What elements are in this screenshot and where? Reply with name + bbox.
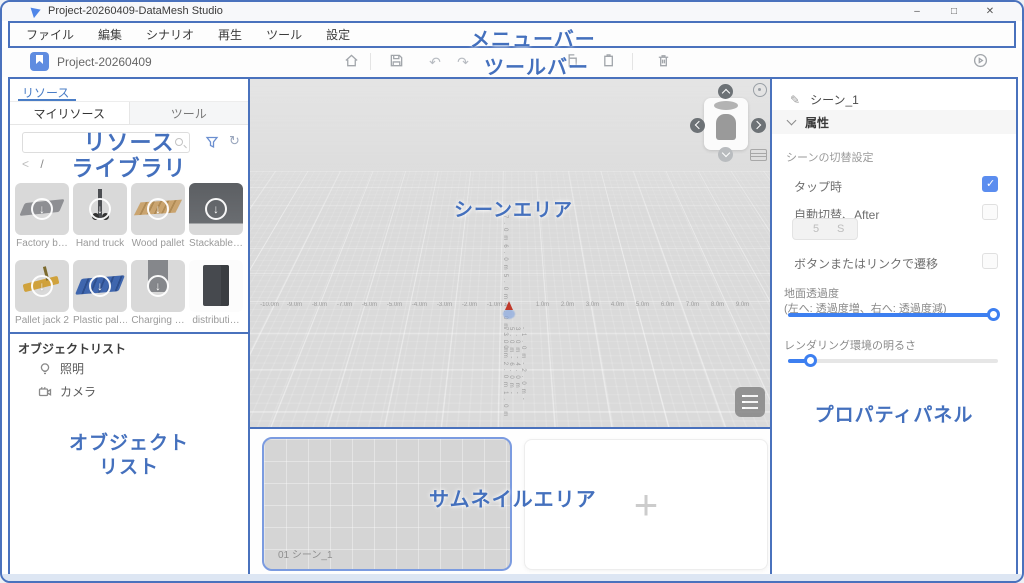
ruler-label: -9.0m [282,302,307,308]
resource-thumbnail: ↓ [15,183,69,235]
ruler-label: 5.0m [630,302,655,308]
ruler-label: -10.0m [257,302,282,308]
scene-haze [250,79,770,218]
attributes-section-label: 属性 [805,114,829,131]
ruler-label: -2.0m [457,302,482,308]
scene-ruler-vertical-top: 7.0m6.0m5.0m4.0m3.0m2.0m1.0m [502,215,508,301]
ruler-label: 9.0m [730,302,755,308]
scene-ruler-horizontal-left: -10.0m-9.0m-8.0m-7.0m-6.0m-5.0m-4.0m-3.0… [257,302,507,308]
delay-unit: S [837,223,844,235]
slider-fill [788,313,998,317]
slider-handle[interactable] [987,308,1000,321]
light-icon [38,362,52,376]
object-list-header: オブジェクトリスト [18,340,126,357]
gizmo-head-front [716,114,736,140]
object-item-light[interactable]: 照明 [38,360,84,377]
orbit-up-button[interactable] [718,84,733,99]
auto-switch-checkbox[interactable] [982,204,998,220]
resource-item-label: Factory b… [15,238,69,249]
resource-thumbnail: ↓ [131,260,185,312]
resource-item-label: distributi… [189,315,243,326]
resource-item-label: Pallet jack 2 [15,315,69,326]
resource-subtabs: マイリソース ツール [10,102,248,125]
window-title: Project-20260409-DataMesh Studio [48,5,223,17]
search-input[interactable] [22,132,190,153]
ruler-label: 7.0m [680,302,705,308]
resource-item-woodpallet[interactable]: ↓ Wood pallet [131,183,185,249]
keyboard-shortcuts-icon[interactable] [750,149,767,161]
scene-viewport[interactable]: -10.0m-9.0m-8.0m-7.0m-6.0m-5.0m-4.0m-3.0… [250,79,770,427]
resource-thumbnail: ↓ [189,183,243,235]
menu-item-edit[interactable]: 編集 [98,26,122,43]
menu-item-play[interactable]: 再生 [218,26,242,43]
properties-panel: ✎ シーン_1 属性 シーンの切替設定 タップ時 自動切替、After 5 S … [772,79,1016,575]
ruler-label: -4.0m [514,356,520,391]
resource-item-distribution[interactable]: distributi… [189,260,243,326]
scene-origin-gizmo[interactable] [502,305,516,319]
ruler-label: 3.0m [580,302,605,308]
orbit-right-button[interactable] [751,118,766,133]
object-item-label: カメラ [60,383,96,400]
save-icon[interactable] [387,53,405,71]
ruler-label: 4.0m [605,302,630,308]
ruler-label: 5.0m [502,274,508,303]
tab-my-resources[interactable]: マイリソース [10,102,129,124]
menu-item-settings[interactable]: 設定 [326,26,350,43]
download-icon: ↓ [147,275,169,297]
scene-ruler-horizontal-right: 1.0m2.0m3.0m4.0m5.0m6.0m7.0m8.0m9.0m [530,302,755,308]
chevron-down-icon [787,116,797,126]
refresh-icon[interactable]: ↻ [229,133,240,149]
minimize-button[interactable]: – [906,4,928,19]
toolbar-divider [370,53,371,70]
toolbar-divider [632,53,633,70]
resource-item-charging[interactable]: ↓ Charging … [131,260,185,326]
resource-item-stackable[interactable]: ↓ Stackable… [189,183,243,249]
download-icon: ↓ [205,198,227,220]
app-logo-icon [31,5,43,18]
ruler-label: 1.0m [530,302,555,308]
resource-item-label: Stackable… [189,238,243,249]
project-name: Project-20260409 [57,55,152,69]
scene-name: シーン_1 [810,91,859,108]
paste-icon[interactable] [600,53,618,71]
ruler-label: -3.0m [432,302,457,308]
breadcrumb[interactable]: < / [22,157,44,171]
ruler-label: 8.0m [705,302,730,308]
download-icon: ↓ [31,198,53,220]
thumbnail-area: 01 シーン_1 + [250,429,770,575]
play-icon[interactable] [971,53,989,71]
resource-thumbnail: ↓ [131,183,185,235]
redo-icon[interactable]: ↷ [454,53,472,71]
ruler-label: -1.0m [520,327,526,362]
resource-item-handtruck[interactable]: ↓ Hand truck [73,183,127,249]
status-bar [2,574,1022,581]
resource-thumbnail: ↓ [73,260,127,312]
camera-icon [38,385,52,399]
ruler-label: 2.0m [555,302,580,308]
ruler-label: 6.0m [502,244,508,273]
menu-item-tools[interactable]: ツール [266,26,302,43]
resource-item-plasticpallet[interactable]: ↓ Plastic pal… [73,260,127,326]
ground-opacity-label: 地面透過度 [784,285,839,301]
download-icon: ↓ [89,198,111,220]
download-icon: ↓ [31,275,53,297]
breadcrumb-path: / [40,157,43,171]
title-bar: Project-20260409-DataMesh Studio – □ ✕ [2,2,1022,21]
plus-icon: + [525,440,767,569]
project-icon [30,52,49,71]
resource-item-label: Wood pallet [131,238,185,249]
menu-item-file[interactable]: ファイル [26,26,74,43]
resource-item-label: Hand truck [73,238,127,249]
filter-icon[interactable] [205,135,219,154]
scene-thumbnail-1[interactable]: 01 シーン_1 [262,437,512,571]
ruler-label: -4.0m [407,302,432,308]
resource-thumbnail: ↓ [15,260,69,312]
trash-icon[interactable] [654,53,672,71]
tap-label: タップ時 [794,178,842,195]
object-item-camera[interactable]: カメラ [38,383,96,400]
edit-pencil-icon[interactable]: ✎ [790,93,800,107]
ruler-label: -2.0m [520,362,526,397]
download-icon: ↓ [89,275,111,297]
menu-item-scenario[interactable]: シナリオ [146,26,194,43]
search-icon [175,138,183,146]
object-item-label: 照明 [60,360,84,377]
annotation-object-list: オブジェクトリスト [8,432,250,480]
brightness-label: レンダリング環境の明るさ [784,337,916,353]
resource-thumbnail [189,260,243,312]
resource-thumbnail: ↓ [73,183,127,235]
ruler-label: 7.0m [502,215,508,244]
scene-list-toggle-button[interactable] [735,387,765,417]
link-transition-checkbox[interactable] [982,253,998,269]
maximize-button[interactable]: □ [943,4,965,19]
ruler-label: -7.0m [332,302,357,308]
ruler-label: -8.0m [307,302,332,308]
resource-item-palletjack[interactable]: ↓ Pallet jack 2 [15,260,69,326]
tab-tools[interactable]: ツール [129,102,249,124]
ruler-label: 6.0m [655,302,680,308]
gizmo-head-top [714,101,738,110]
slider-handle[interactable] [804,354,817,367]
scene-ruler-vertical-bottom: -1.0m-2.0m-3.0m-4.0m-5.0m-6.0m-7.0m [502,327,526,413]
download-icon: ↓ [147,198,169,220]
app-window: Project-20260409-DataMesh Studio – □ ✕ フ… [0,0,1024,583]
undo-icon[interactable]: ↶ [426,53,444,71]
scene-thumbnail-label: 01 シーン_1 [278,546,333,561]
reset-view-icon[interactable] [753,83,767,97]
view-orientation-gizmo[interactable] [704,98,748,150]
orbit-down-button[interactable] [718,147,733,162]
ruler-label: -5.0m [382,302,407,308]
switch-settings-label: シーンの切替設定 [786,149,873,165]
copy-icon[interactable] [562,53,580,71]
resource-item-factory[interactable]: ↓ Factory b… [15,183,69,249]
attributes-section-header[interactable]: 属性 [772,110,1016,134]
delay-input[interactable]: 5 S [792,218,858,240]
orbit-left-button[interactable] [690,118,705,133]
menu-bar: ファイル 編集 シナリオ 再生 ツール 設定 [10,23,1014,46]
ruler-label: -6.0m [357,302,382,308]
resource-item-label: Plastic pal… [73,315,127,326]
link-transition-label: ボタンまたはリンクで遷移 [794,255,938,272]
ruler-label: -6.0m [508,356,514,391]
tap-checkbox[interactable] [982,176,998,192]
delay-value: 5 [813,223,819,235]
toolbar: Project-20260409 ↶ ↷ [2,48,1024,77]
breadcrumb-back[interactable]: < [22,157,29,171]
add-scene-button[interactable]: + [524,439,768,570]
brightness-slider[interactable] [788,359,998,363]
home-icon[interactable] [342,53,360,71]
ground-opacity-slider[interactable] [788,313,998,317]
close-button[interactable]: ✕ [979,4,1001,19]
resource-item-label: Charging … [131,315,185,326]
